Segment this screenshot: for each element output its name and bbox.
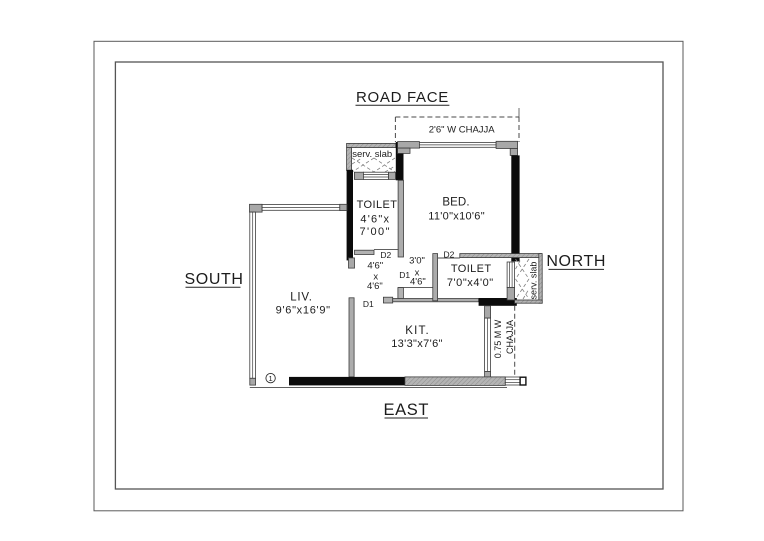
svg-text:D1: D1 — [399, 270, 410, 280]
svg-text:7'00": 7'00" — [360, 226, 391, 238]
svg-text:SOUTH: SOUTH — [185, 271, 244, 288]
svg-text:ROAD FACE: ROAD FACE — [356, 89, 449, 106]
svg-text:11'0"x10'6": 11'0"x10'6" — [428, 211, 485, 223]
svg-text:2'6" W CHAJJA: 2'6" W CHAJJA — [429, 124, 496, 135]
svg-text:9'6"x16'9": 9'6"x16'9" — [276, 305, 331, 317]
svg-text:4'6": 4'6" — [367, 281, 383, 292]
svg-text:TOILET: TOILET — [451, 263, 492, 275]
svg-text:CHAJJA: CHAJJA — [505, 320, 515, 354]
svg-text:1: 1 — [269, 374, 273, 383]
svg-text:D1: D1 — [363, 299, 374, 309]
svg-text:EAST: EAST — [384, 401, 430, 419]
svg-text:KIT.: KIT. — [405, 325, 430, 337]
svg-text:7'0"x4'0": 7'0"x4'0" — [447, 277, 494, 289]
svg-text:D2: D2 — [443, 249, 454, 259]
svg-text:0.75 M W: 0.75 M W — [493, 319, 503, 358]
svg-text:serv. slab: serv. slab — [528, 262, 538, 300]
svg-text:4'6": 4'6" — [367, 261, 383, 272]
svg-text:TOILET: TOILET — [357, 199, 398, 211]
svg-text:3'0": 3'0" — [409, 255, 425, 266]
svg-text:LIV.: LIV. — [290, 292, 313, 304]
svg-text:BED.: BED. — [442, 196, 469, 208]
svg-text:NORTH: NORTH — [546, 253, 606, 270]
svg-text:4'6"x: 4'6"x — [360, 213, 390, 225]
svg-text:D2: D2 — [380, 250, 391, 260]
svg-text:4'6": 4'6" — [410, 277, 426, 288]
svg-text:serv. slab: serv. slab — [352, 149, 392, 160]
svg-text:13'3"x7'6": 13'3"x7'6" — [391, 338, 443, 350]
